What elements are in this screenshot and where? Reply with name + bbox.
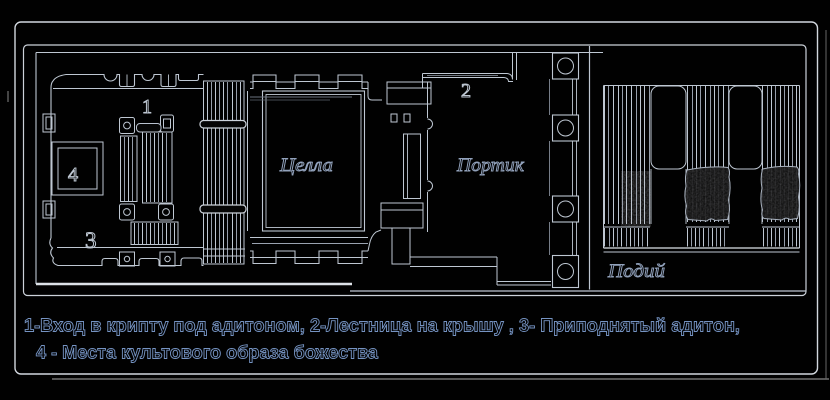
svg-text:1-Вход в крипту под адитоном,: 1-Вход в крипту под адитоном, 2-Лестница… [24,316,740,336]
svg-text:1: 1 [142,96,152,118]
svg-text:Портик: Портик [456,155,525,176]
svg-text:2: 2 [461,80,471,102]
svg-text:4 - Места культового образа бо: 4 - Места культового образа божества [36,343,379,363]
svg-text:Целла: Целла [279,155,333,176]
svg-text:3: 3 [85,228,97,253]
svg-text:4: 4 [68,164,78,186]
svg-text:Подий: Подий [607,261,666,282]
